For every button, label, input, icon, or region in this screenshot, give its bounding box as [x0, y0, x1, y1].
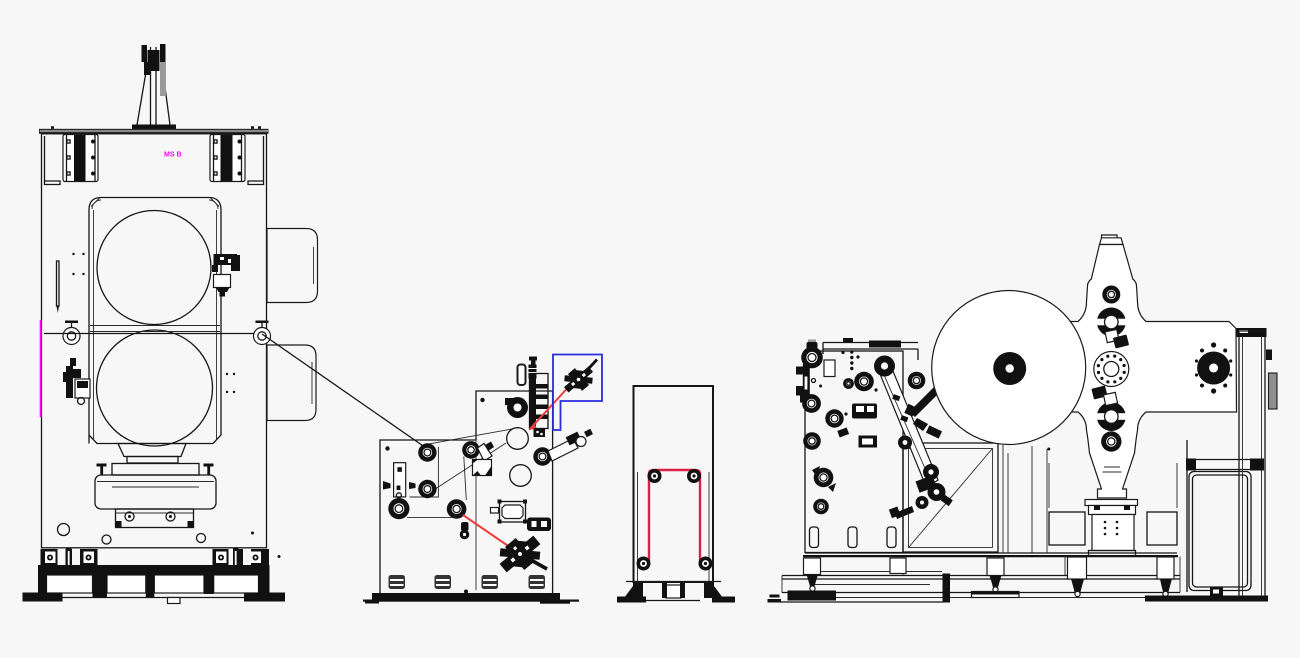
svg-text:MS B: MS B	[164, 152, 182, 159]
